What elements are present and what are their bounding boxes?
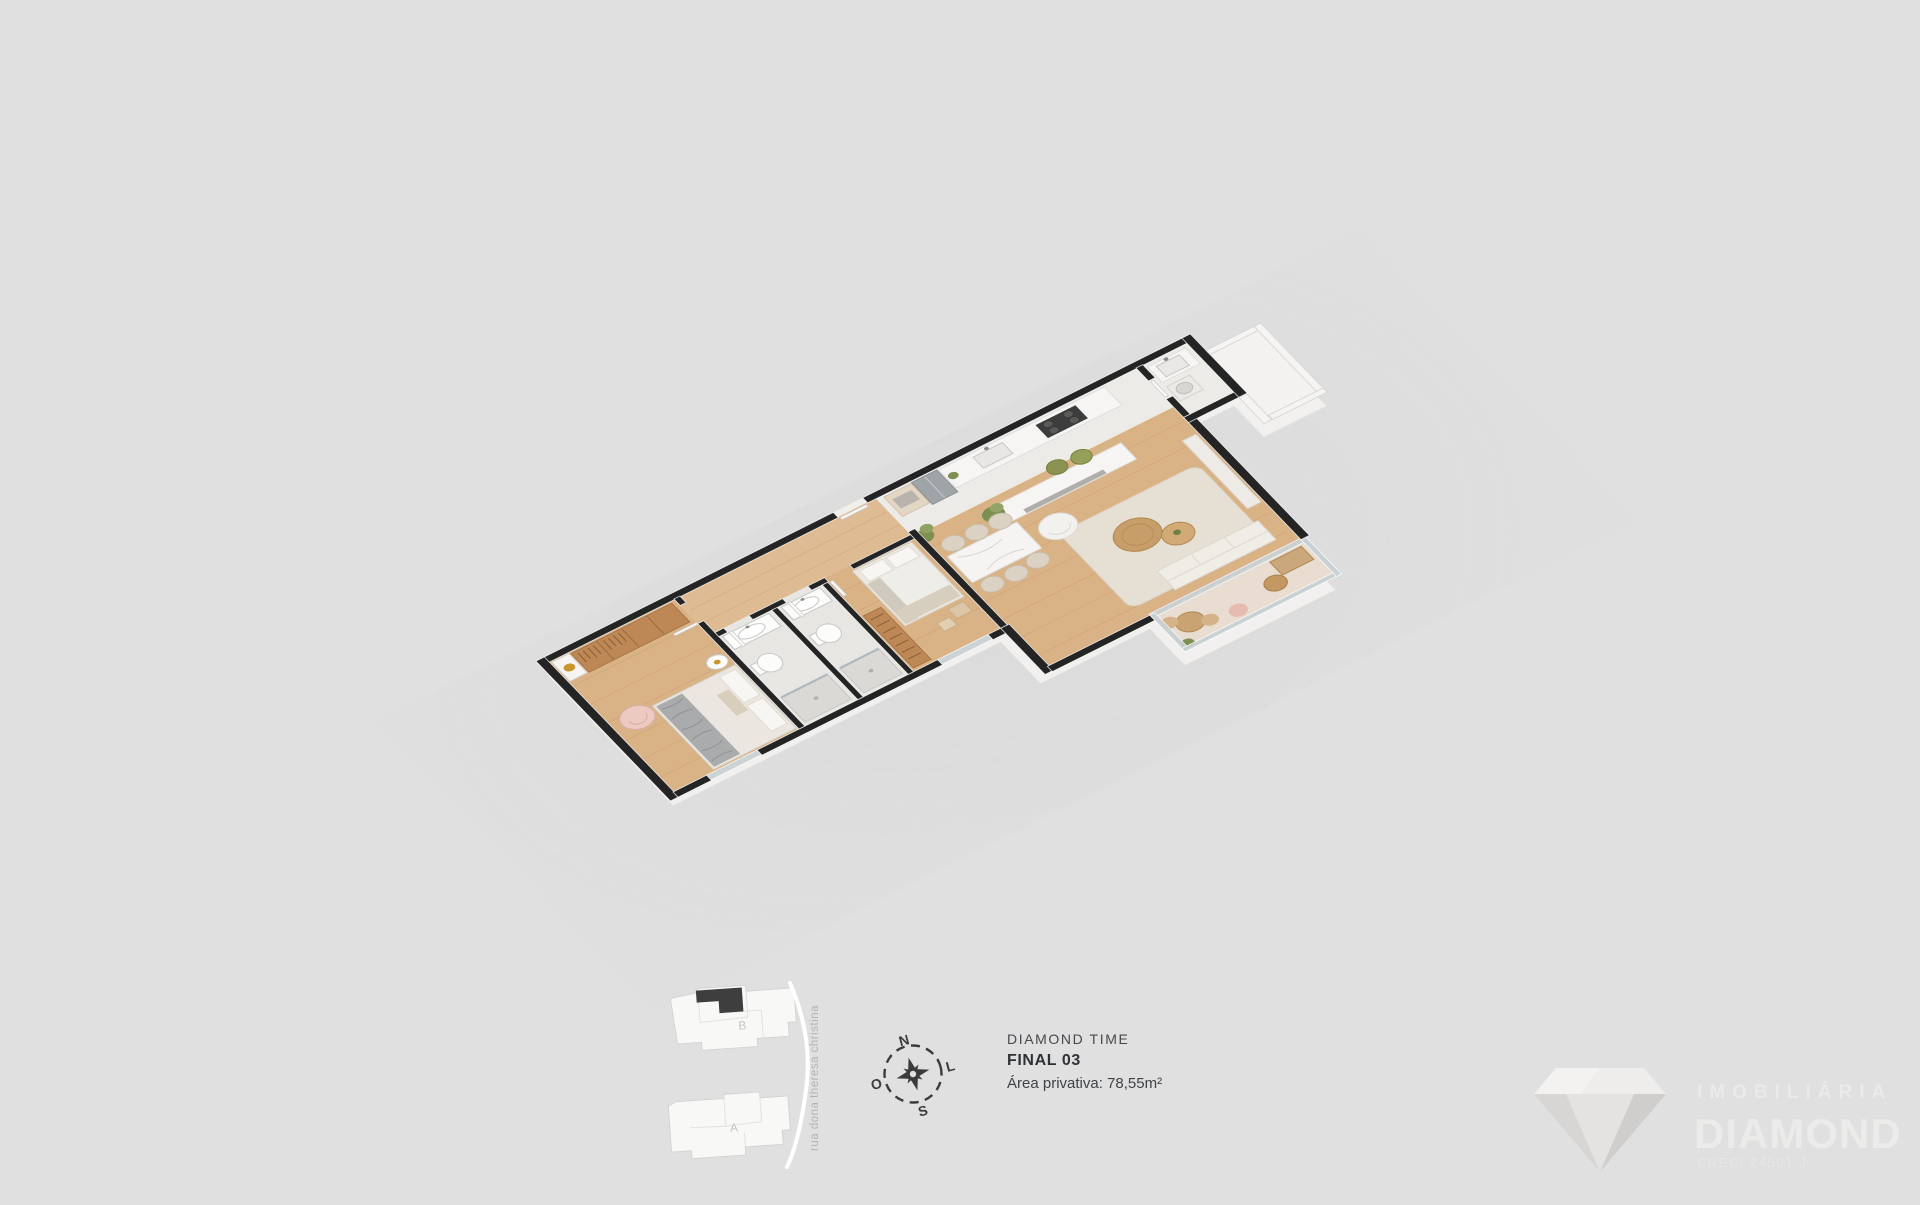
tower-a-label: A (730, 1120, 739, 1135)
watermark-brand: DIAMOND (1694, 1110, 1902, 1157)
tower-b-footprint: B (670, 982, 798, 1052)
diamond-icon (1534, 1068, 1666, 1172)
watermark-registration: CRECI 24501-J (1697, 1155, 1808, 1170)
private-area: Área privativa: 78,55m² (1007, 1075, 1162, 1092)
unit-info-block: DIAMOND TIME FINAL 03 Área privativa: 78… (1007, 1031, 1162, 1092)
compass-icon: N S L O (860, 1021, 966, 1129)
watermark-tagline: IMOBILIÁRIA (1697, 1081, 1892, 1103)
brand-watermark: IMOBILIÁRIA DIAMOND CRECI 24501-J (1534, 1068, 1902, 1172)
unit-number: FINAL 03 (1007, 1052, 1162, 1070)
compass-west: O (869, 1075, 884, 1093)
render-canvas: B A rua dona theresa christina N S L O (0, 0, 1920, 1205)
tower-a-footprint: A (668, 1090, 792, 1160)
floorplan-scene: B A rua dona theresa christina N S L O (0, 0, 1920, 1205)
compass-south: S (916, 1102, 929, 1120)
compass-north: N (897, 1031, 911, 1049)
street-name: rua dona theresa christina (809, 1005, 821, 1151)
project-name: DIAMOND TIME (1007, 1031, 1162, 1047)
tower-b-label: B (738, 1018, 747, 1033)
site-locator: B A rua dona theresa christina (668, 982, 821, 1167)
compass-east: L (944, 1057, 957, 1075)
